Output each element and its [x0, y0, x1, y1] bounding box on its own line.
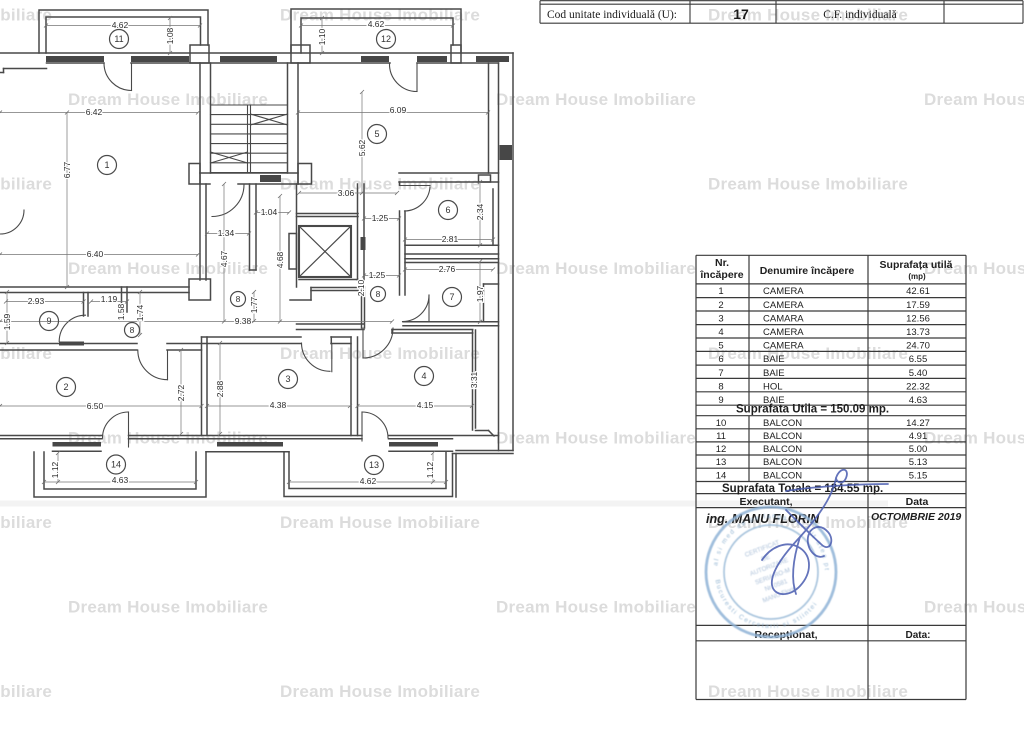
svg-text:9: 9: [718, 395, 723, 406]
svg-text:12.56: 12.56: [906, 313, 930, 324]
svg-text:Nr.: Nr.: [715, 257, 729, 269]
svg-text:1.59: 1.59: [2, 313, 12, 330]
svg-text:Dream House Imobiliare: Dream House Imobiliare: [496, 598, 696, 617]
svg-text:Dream House Imobiliare: Dream House Imobiliare: [0, 682, 52, 701]
svg-text:BAIE: BAIE: [763, 368, 785, 379]
svg-text:Dream House Imobiliare: Dream House Imobiliare: [0, 344, 52, 363]
svg-text:Dream House Imobiliare: Dream House Imobiliare: [68, 598, 268, 617]
svg-text:CAMERA: CAMERA: [763, 327, 804, 338]
svg-text:7: 7: [449, 292, 454, 302]
svg-text:12: 12: [716, 444, 727, 455]
svg-text:2: 2: [718, 300, 723, 311]
svg-text:1.25: 1.25: [369, 270, 386, 280]
svg-text:5.13: 5.13: [909, 457, 928, 468]
svg-text:Dream House Imobiliare: Dream House Imobiliare: [924, 428, 1024, 447]
svg-text:Data: Data: [906, 496, 929, 508]
svg-text:1.58: 1.58: [116, 303, 126, 320]
svg-text:BALCON: BALCON: [763, 457, 802, 468]
svg-text:11: 11: [716, 431, 726, 442]
svg-text:22.32: 22.32: [906, 381, 930, 392]
svg-text:Dream House Imobiliare: Dream House Imobiliare: [0, 513, 52, 532]
svg-text:8: 8: [718, 381, 723, 392]
svg-text:Dream House Imobiliare: Dream House Imobiliare: [280, 513, 480, 532]
svg-text:2.72: 2.72: [176, 384, 186, 401]
svg-text:2.76: 2.76: [439, 264, 456, 274]
svg-text:încăpere: încăpere: [699, 269, 743, 281]
svg-text:4.63: 4.63: [112, 475, 129, 485]
svg-text:4.91: 4.91: [909, 431, 928, 442]
svg-text:OCTOMBRIE 2019: OCTOMBRIE 2019: [871, 511, 961, 523]
svg-text:10: 10: [716, 418, 727, 429]
svg-text:BALCON: BALCON: [763, 444, 802, 455]
svg-text:14: 14: [111, 460, 121, 470]
svg-text:CAMERA: CAMERA: [763, 286, 804, 297]
svg-text:HOL: HOL: [763, 381, 783, 392]
svg-text:BALCON: BALCON: [763, 470, 802, 481]
svg-text:17: 17: [733, 6, 749, 22]
svg-text:Suprafața utilă: Suprafața utilă: [880, 259, 953, 271]
svg-text:6: 6: [445, 205, 450, 215]
svg-text:2.93: 2.93: [28, 296, 45, 306]
svg-text:6: 6: [718, 354, 723, 365]
svg-text:5: 5: [718, 341, 723, 352]
svg-text:6.77: 6.77: [62, 161, 72, 178]
svg-text:5: 5: [374, 129, 379, 139]
svg-text:1.04: 1.04: [261, 207, 278, 217]
svg-text:4.62: 4.62: [368, 19, 385, 29]
svg-text:1.34: 1.34: [218, 228, 235, 238]
svg-text:1.77: 1.77: [249, 296, 259, 313]
svg-text:CAMARA: CAMARA: [763, 313, 804, 324]
svg-text:5.40: 5.40: [909, 368, 928, 379]
svg-text:14: 14: [716, 470, 727, 481]
svg-text:2.34: 2.34: [475, 203, 485, 220]
svg-text:Dream House Imobiliare: Dream House Imobiliare: [708, 682, 908, 701]
svg-text:1.08: 1.08: [165, 27, 175, 44]
svg-text:42.61: 42.61: [906, 286, 930, 297]
svg-text:12: 12: [381, 34, 391, 44]
svg-text:BAIE: BAIE: [763, 354, 785, 365]
svg-text:Dream House Imobiliare: Dream House Imobiliare: [0, 5, 52, 24]
svg-text:Dream House Imobiliare: Dream House Imobiliare: [0, 175, 52, 194]
svg-text:6.42: 6.42: [86, 107, 103, 117]
svg-text:(mp): (mp): [908, 272, 926, 281]
svg-text:3: 3: [718, 313, 723, 324]
svg-text:4.67: 4.67: [219, 250, 229, 267]
svg-text:4.63: 4.63: [909, 395, 928, 406]
svg-text:6.50: 6.50: [87, 401, 104, 411]
svg-text:4: 4: [718, 327, 723, 338]
svg-text:1.12: 1.12: [425, 461, 435, 478]
svg-text:Dream House Imobiliare: Dream House Imobiliare: [924, 598, 1024, 617]
svg-text:1.10: 1.10: [317, 28, 327, 45]
svg-text:Dream House Imobiliare: Dream House Imobiliare: [68, 259, 268, 278]
svg-text:5.15: 5.15: [909, 470, 928, 481]
svg-text:1: 1: [104, 160, 109, 170]
svg-text:5.00: 5.00: [909, 444, 928, 455]
svg-text:Dream House Imobiliare: Dream House Imobiliare: [496, 259, 696, 278]
svg-text:3.06: 3.06: [338, 188, 355, 198]
svg-text:2.10: 2.10: [356, 279, 366, 296]
svg-text:BALCON: BALCON: [763, 418, 802, 429]
svg-text:CAMERA: CAMERA: [763, 300, 804, 311]
svg-text:Dream House Imobiliare: Dream House Imobiliare: [708, 344, 908, 363]
svg-text:Dream House Imobiliare: Dream House Imobiliare: [924, 90, 1024, 109]
svg-text:3: 3: [285, 374, 290, 384]
svg-text:3.31: 3.31: [469, 371, 479, 388]
svg-text:8: 8: [130, 325, 135, 335]
svg-text:9.38: 9.38: [235, 316, 252, 326]
svg-text:1.25: 1.25: [372, 213, 389, 223]
svg-text:1.97: 1.97: [475, 285, 485, 302]
svg-text:4.62: 4.62: [112, 20, 129, 30]
svg-text:4.15: 4.15: [417, 400, 434, 410]
svg-text:Data:: Data:: [905, 630, 930, 641]
svg-text:1: 1: [718, 286, 723, 297]
svg-text:CAMERA: CAMERA: [763, 341, 804, 352]
svg-text:13.73: 13.73: [906, 327, 930, 338]
svg-text:Dream House Imobiliare: Dream House Imobiliare: [280, 682, 480, 701]
svg-text:6.09: 6.09: [390, 105, 407, 115]
svg-text:2: 2: [63, 382, 68, 392]
svg-text:Cod unitate individuală (U):: Cod unitate individuală (U):: [547, 9, 677, 21]
svg-text:8: 8: [376, 289, 381, 299]
svg-text:13: 13: [369, 460, 379, 470]
svg-text:Suprafata Utila = 150.09 mp.: Suprafata Utila = 150.09 mp.: [736, 404, 889, 416]
svg-text:2.81: 2.81: [442, 234, 459, 244]
svg-text:4: 4: [421, 371, 426, 381]
svg-text:5.62: 5.62: [357, 139, 367, 156]
svg-text:11: 11: [114, 34, 123, 44]
svg-text:Denumire încăpere: Denumire încăpere: [760, 265, 855, 277]
svg-text:BALCON: BALCON: [763, 431, 802, 442]
svg-text:1.12: 1.12: [50, 461, 60, 478]
svg-text:2.88: 2.88: [215, 380, 225, 397]
svg-text:Dream House Imobiliare: Dream House Imobiliare: [496, 428, 696, 447]
svg-text:6.40: 6.40: [87, 249, 104, 259]
svg-text:4.62: 4.62: [360, 476, 377, 486]
svg-text:1.19: 1.19: [101, 294, 118, 304]
svg-text:24.70: 24.70: [906, 341, 930, 352]
svg-text:C.F. individuală: C.F. individuală: [823, 9, 897, 21]
svg-text:14.27: 14.27: [906, 418, 930, 429]
svg-text:6.55: 6.55: [909, 354, 928, 365]
svg-text:Dream House Imobiliare: Dream House Imobiliare: [708, 175, 908, 194]
svg-text:9: 9: [46, 316, 51, 326]
svg-text:8: 8: [236, 294, 241, 304]
svg-text:7: 7: [718, 368, 723, 379]
svg-text:4.68: 4.68: [275, 251, 285, 268]
svg-text:Dream House Imobiliare: Dream House Imobiliare: [496, 90, 696, 109]
svg-text:1.74: 1.74: [135, 304, 145, 321]
svg-text:17.59: 17.59: [906, 300, 930, 311]
svg-text:4.38: 4.38: [270, 400, 287, 410]
svg-text:13: 13: [716, 457, 727, 468]
